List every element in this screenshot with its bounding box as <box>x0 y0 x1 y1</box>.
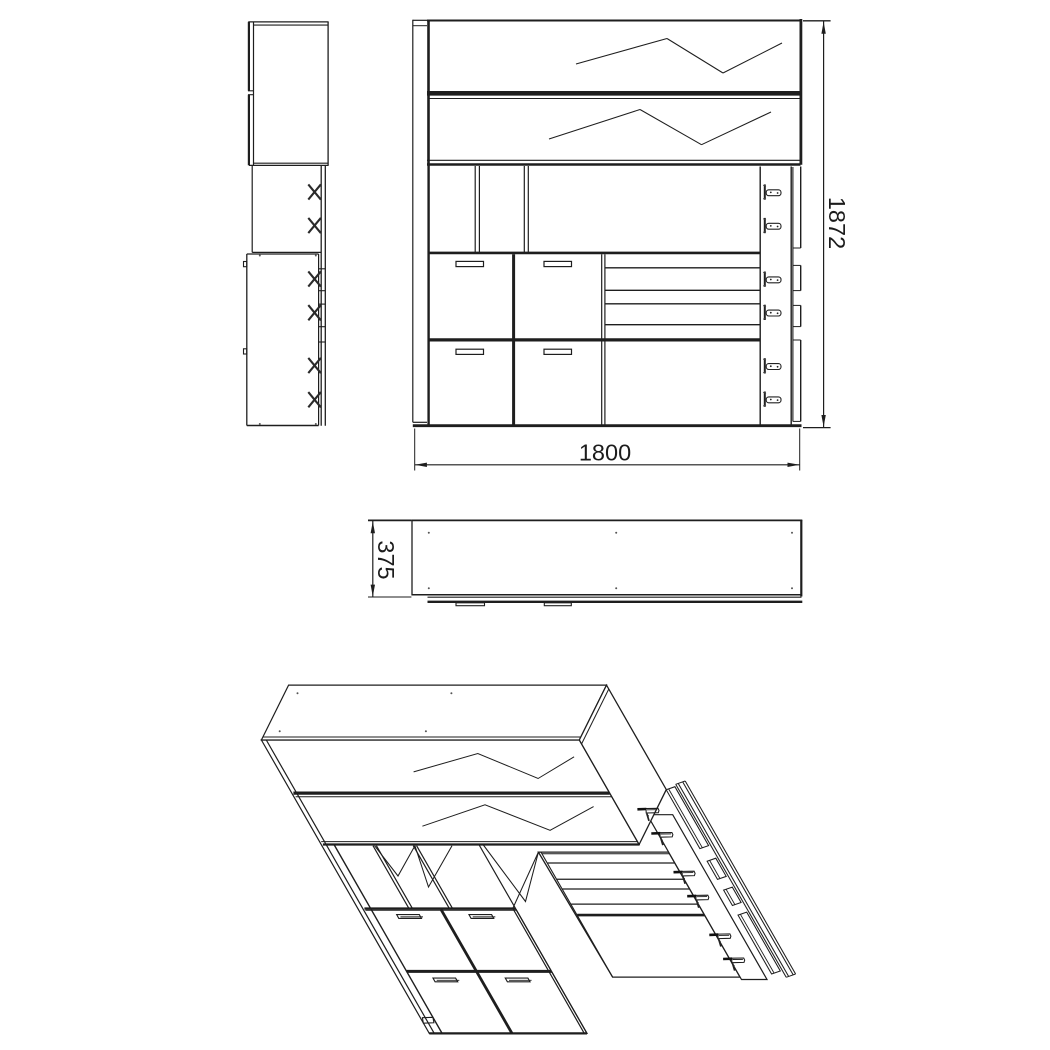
svg-text:375: 375 <box>373 540 399 579</box>
svg-text:1872: 1872 <box>824 197 850 249</box>
svg-text:1800: 1800 <box>579 440 631 466</box>
